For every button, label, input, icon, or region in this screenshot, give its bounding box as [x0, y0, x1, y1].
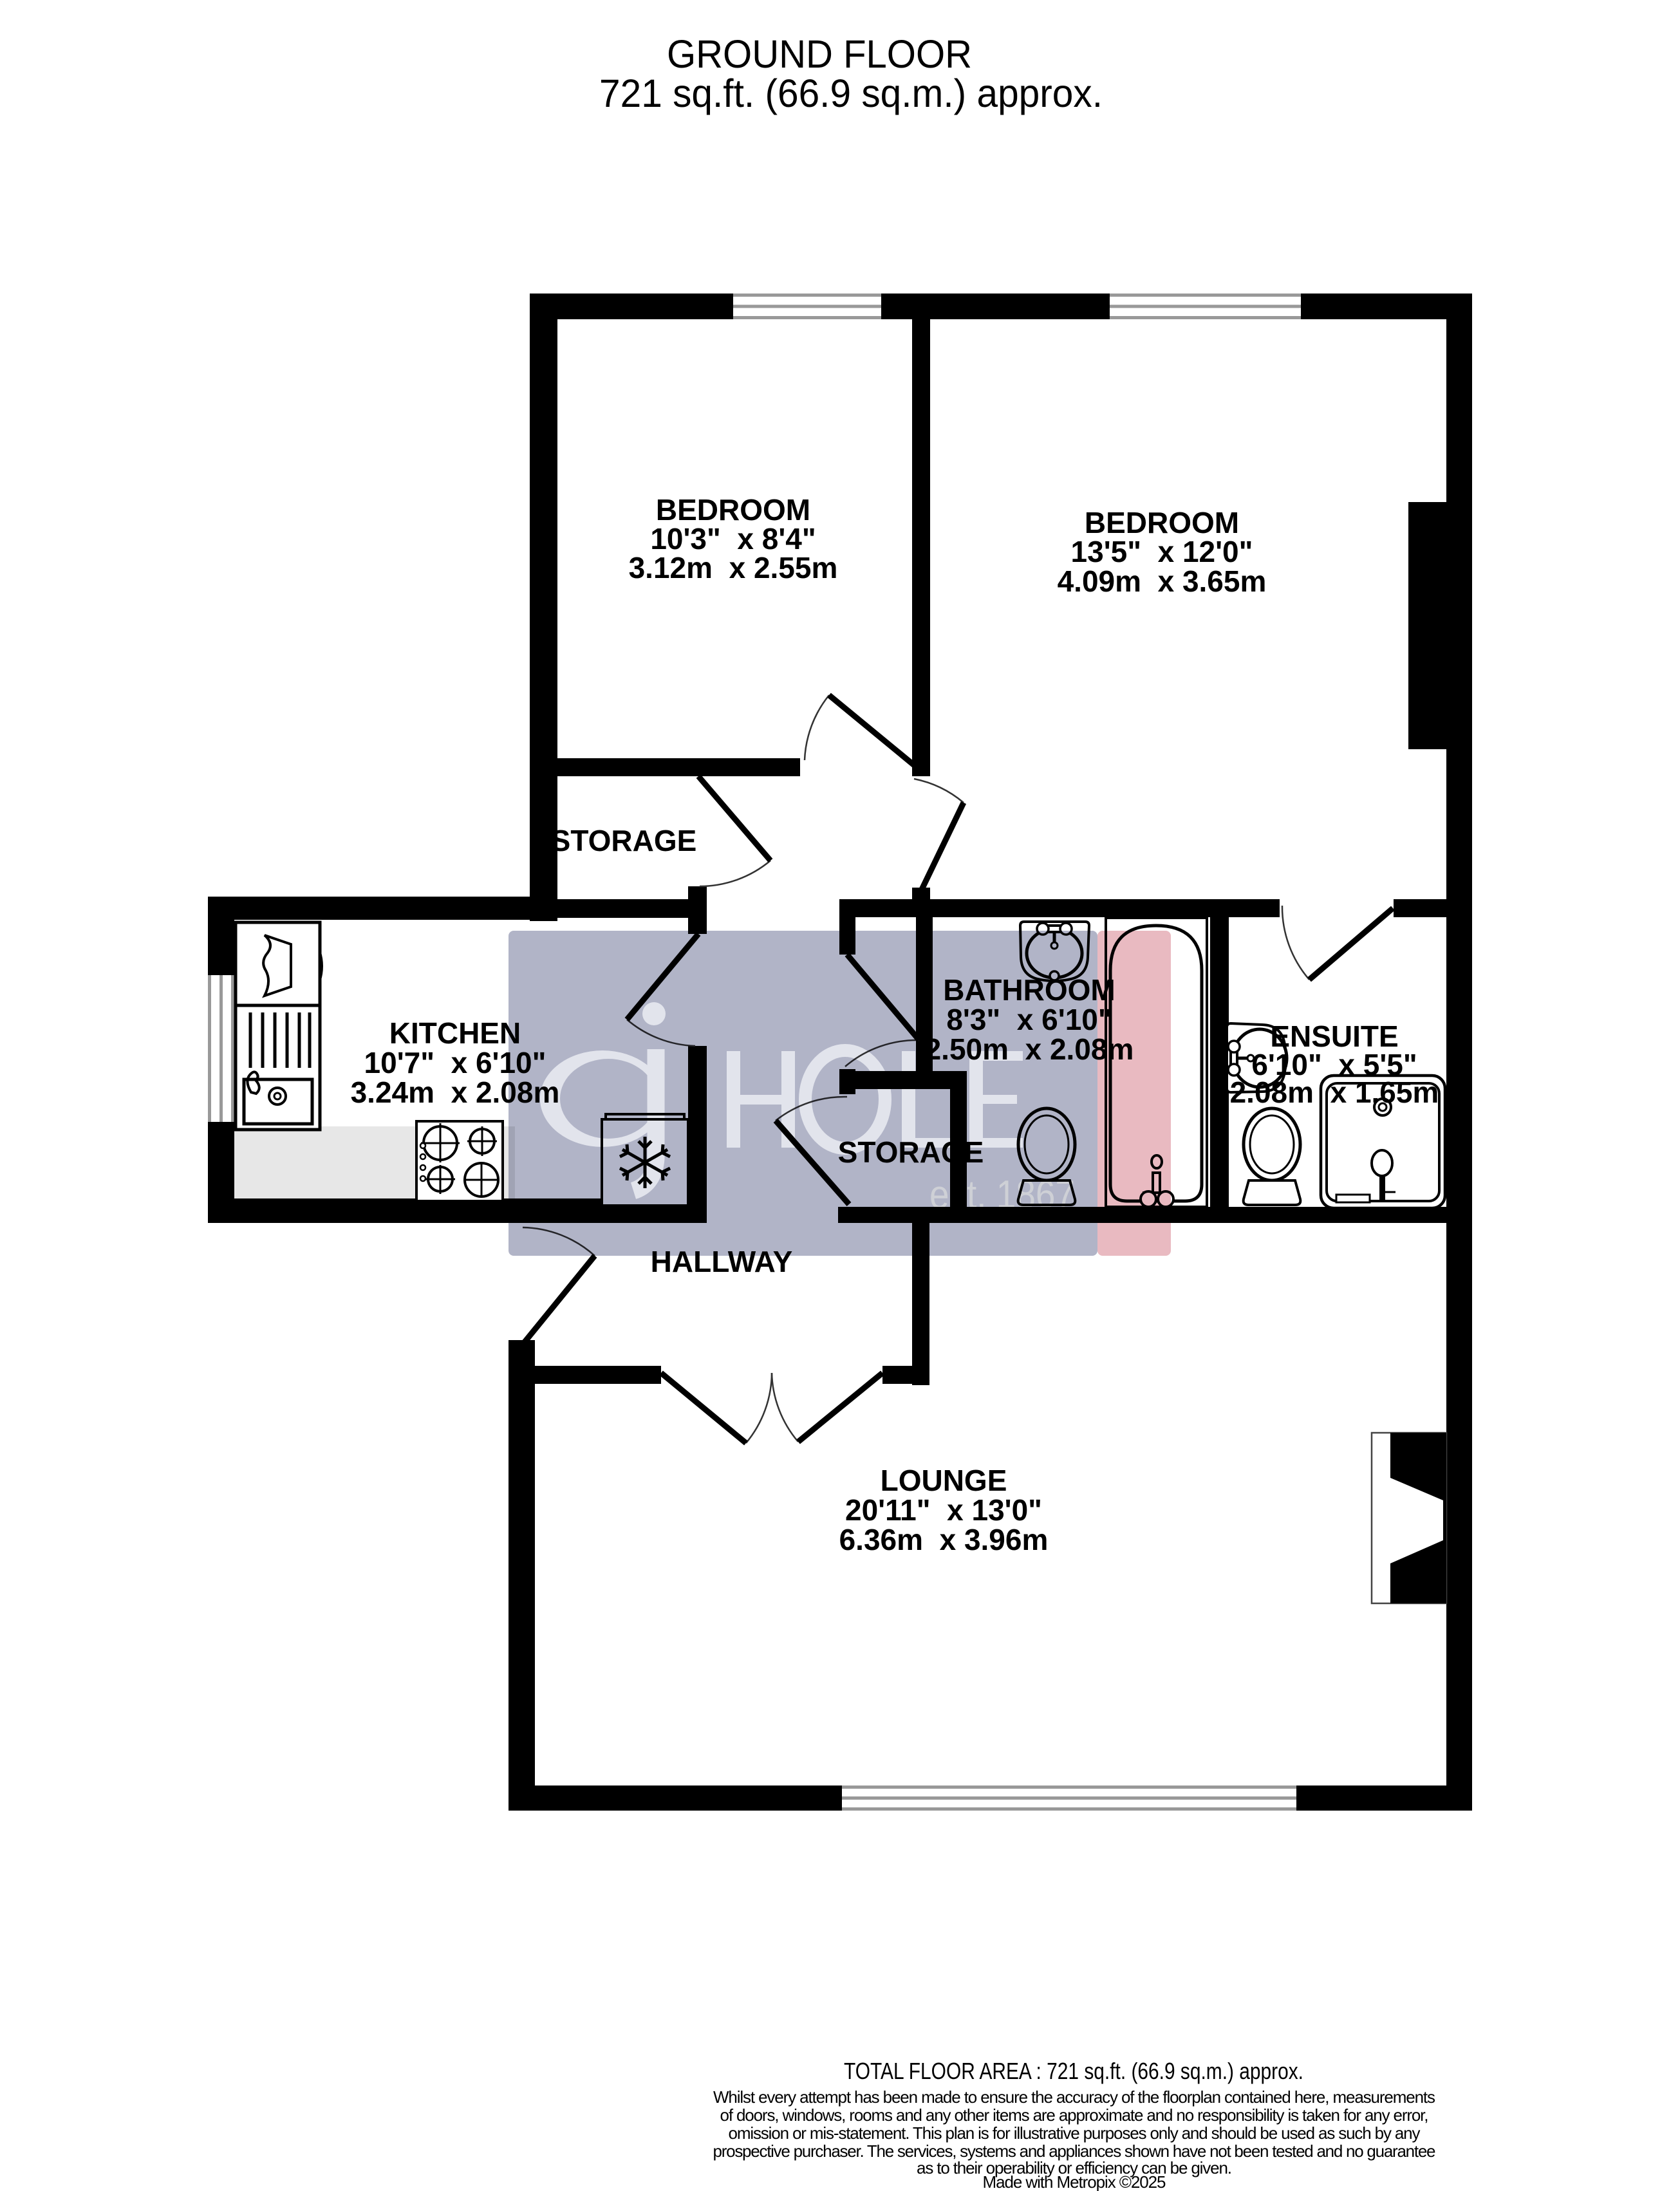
svg-text:est. 1867: est. 1867: [929, 1173, 1075, 1217]
svg-text:4.09m x 3.65m: 4.09m x 3.65m: [1058, 564, 1267, 598]
svg-text:20'11" x 13'0": 20'11" x 13'0": [845, 1493, 1042, 1527]
svg-text:KITCHEN: KITCHEN: [389, 1016, 521, 1050]
svg-text:Whilst every attempt has been: Whilst every attempt has been made to en…: [713, 2087, 1435, 2107]
svg-text:TOTAL FLOOR AREA : 721 sq.ft.: TOTAL FLOOR AREA : 721 sq.ft. (66.9 sq.m…: [844, 2058, 1303, 2084]
svg-text:STORAGE: STORAGE: [551, 824, 697, 857]
svg-text:of doors, windows, rooms and a: of doors, windows, rooms and any other i…: [720, 2105, 1429, 2125]
svg-text:Made with Metropix ©2025: Made with Metropix ©2025: [983, 2172, 1166, 2191]
svg-text:LOUNGE: LOUNGE: [881, 1464, 1007, 1497]
svg-text:omission or mis-statement. Thi: omission or mis-statement. This plan is …: [729, 2123, 1421, 2143]
svg-text:GROUND FLOOR: GROUND FLOOR: [667, 32, 972, 76]
svg-text:3.12m x 2.55m: 3.12m x 2.55m: [629, 551, 838, 584]
svg-text:721 sq.ft. (66.9 sq.m.) approx: 721 sq.ft. (66.9 sq.m.) approx.: [599, 71, 1103, 115]
svg-text:6.36m x 3.96m: 6.36m x 3.96m: [839, 1523, 1049, 1556]
svg-text:13'5" x 12'0": 13'5" x 12'0": [1071, 535, 1253, 568]
svg-text:2.08m x 1.65m: 2.08m x 1.65m: [1230, 1076, 1439, 1109]
